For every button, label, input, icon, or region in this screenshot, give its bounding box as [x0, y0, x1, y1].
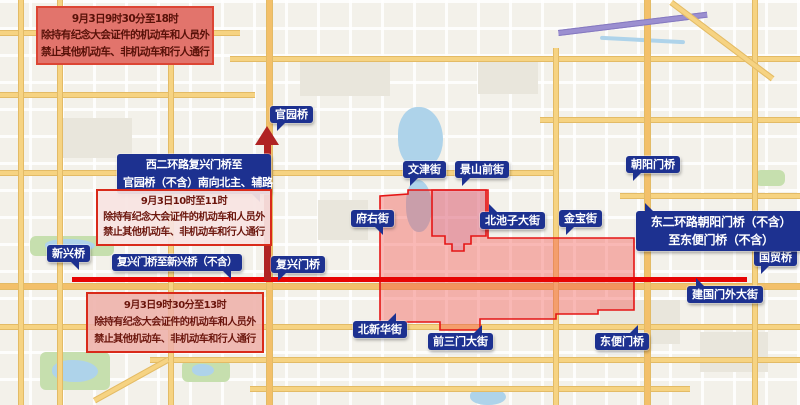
label-pointer: [70, 261, 79, 270]
label-text: 东便门桥: [600, 335, 644, 348]
label-text: 官园桥: [275, 108, 308, 121]
callout-line: 西二环路复兴门桥至: [123, 156, 265, 174]
map-label-beichizidajie: 北池子大街: [480, 212, 545, 229]
notice-rule: 禁止其他机动车、非机动车和行人通行: [101, 225, 267, 241]
northbound-arrow-head: [255, 126, 279, 145]
label-pointer: [462, 177, 471, 186]
callout-line: 至东便门桥（不含）: [642, 231, 800, 249]
label-pointer: [277, 122, 286, 131]
beijing-traffic-control-map: 新兴桥 复兴门桥至新兴桥（不含） 复兴门桥 官园桥 文津街 景山前街 府右街 北…: [0, 0, 800, 405]
label-text: 前三门大街: [433, 335, 488, 348]
label-text: 国贸桥: [759, 251, 792, 264]
map-label-wenjinjie: 文津街: [403, 161, 446, 178]
label-text: 府右街: [356, 212, 389, 225]
label-pointer: [387, 313, 396, 322]
notice-rule: 除持有纪念大会证件的机动车和人员外: [41, 27, 209, 43]
label-text: 北池子大街: [485, 214, 540, 227]
label-text: 新兴桥: [52, 247, 85, 260]
map-label-qiansanmendajie: 前三门大街: [428, 333, 493, 350]
callout-west-second-ring-route: 西二环路复兴门桥至 官园桥（不含）南向北主、辅路: [117, 154, 271, 194]
label-pointer: [410, 177, 419, 186]
notice-rule: 除持有纪念大会证件的机动车和人员外: [91, 314, 259, 331]
map-label-guanyuanqiao: 官园桥: [270, 106, 313, 123]
notice-rule: 禁止其他机动车、非机动车和行人通行: [41, 44, 209, 60]
map-label-xinxingqiao: 新兴桥: [47, 245, 90, 262]
notice-time: 9月3日9时30分至18时: [41, 11, 209, 27]
notice-time: 9月3日9时30分至13时: [91, 297, 259, 314]
label-text: 复兴门桥至新兴桥（不含）: [117, 256, 237, 268]
map-label-beixinhuajie: 北新华街: [353, 321, 407, 338]
map-label-fuxingmen-to-xinxingqiao: 复兴门桥至新兴桥（不含）: [112, 254, 242, 271]
label-pointer: [473, 325, 482, 334]
notice-midday-restriction: 9月3日9时30分至13时 除持有纪念大会证件的机动车和人员外 禁止其他机动车、…: [86, 292, 264, 353]
map-label-jianguomenwaidajie: 建国门外大街: [687, 286, 763, 303]
notice-time: 9月3日10时至11时: [101, 194, 267, 210]
map-label-fuxingmenqiao: 复兴门桥: [271, 256, 325, 273]
label-text: 文津街: [408, 163, 441, 176]
label-pointer: [374, 226, 383, 235]
notice-morning-restriction: 9月3日10时至11时 除持有纪念大会证件的机动车和人员外 禁止其他机动车、非机…: [96, 189, 272, 246]
callout-east-second-ring-route: 东二环路朝阳门桥（不含） 至东便门桥（不含）: [636, 211, 800, 251]
label-pointer: [222, 270, 231, 279]
label-pointer: [761, 265, 770, 274]
label-text: 金宝街: [564, 212, 597, 225]
map-label-dongbianmenqiao: 东便门桥: [595, 333, 649, 350]
label-pointer: [645, 203, 654, 212]
label-pointer: [278, 272, 287, 281]
map-label-jingshanqianjie: 景山前街: [455, 161, 509, 178]
notice-rule: 禁止其他机动车、非机动车和行人通行: [91, 331, 259, 348]
label-pointer: [629, 325, 638, 334]
map-label-chaoyangmenqiao: 朝阳门桥: [626, 156, 680, 173]
map-label-fuyoujie: 府右街: [351, 210, 394, 227]
label-pointer: [566, 226, 575, 235]
label-text: 建国门外大街: [692, 288, 758, 301]
restricted-corridor-line: [72, 277, 747, 282]
label-text: 朝阳门桥: [631, 158, 675, 171]
callout-line: 东二环路朝阳门桥（不含）: [642, 213, 800, 231]
label-pointer: [696, 278, 705, 287]
notice-full-day-restriction: 9月3日9时30分至18时 除持有纪念大会证件的机动车和人员外 禁止其他机动车、…: [36, 6, 214, 65]
label-pointer: [489, 204, 498, 213]
map-label-guomaoqiao: 国贸桥: [754, 249, 797, 266]
label-text: 复兴门桥: [276, 258, 320, 271]
label-text: 景山前街: [460, 163, 504, 176]
map-label-jinbaojie: 金宝街: [559, 210, 602, 227]
label-text: 北新华街: [358, 323, 402, 336]
label-pointer: [633, 172, 642, 181]
notice-rule: 除持有纪念大会证件的机动车和人员外: [101, 210, 267, 226]
